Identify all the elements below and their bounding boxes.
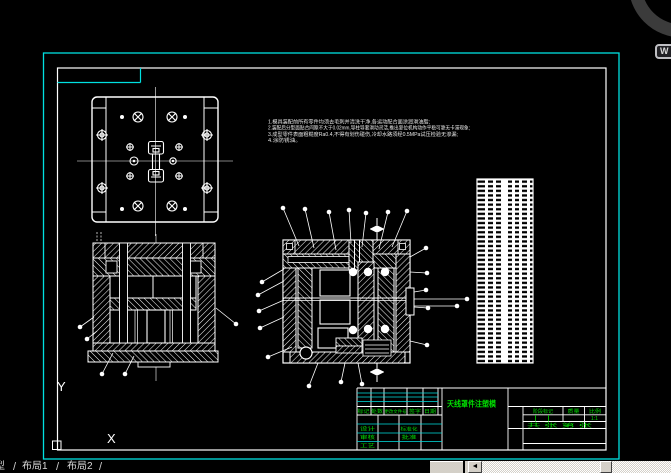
- stage-mark-dividers: [536, 415, 549, 422]
- rev-count-label: 处数: [371, 408, 383, 415]
- top-plan-view: [77, 87, 233, 236]
- navigation-wheel-arc: [635, 0, 671, 31]
- title-block: 天线罩件注塑模 标记 处数 更改文件号 签字 日期 设计 标准化 审核 批准 工…: [357, 388, 606, 450]
- title-block-title: 天线罩件注塑模: [447, 399, 497, 409]
- role-check-label: 审核: [360, 434, 375, 441]
- rev-mark-label: 标记: [358, 408, 370, 415]
- tab-separator: /: [99, 461, 102, 473]
- note-line-2: 2.装配后分型面贴合间隙不大于0.02mm,导柱导套滑动灵活,推出复位机构动作平…: [268, 125, 470, 132]
- rev-file-label: 更改文件号: [385, 408, 407, 415]
- key-hint-badge: W: [655, 44, 671, 59]
- sheet-info: 共 张 第 张: [527, 422, 592, 429]
- horizontal-scrollbar-track[interactable]: [482, 461, 671, 473]
- rev-sign-label: 签字: [409, 408, 421, 415]
- tab-separator: /: [13, 461, 16, 473]
- side-section-view: [477, 179, 533, 363]
- role-design-label: 设计: [360, 426, 375, 433]
- scale-label: 比例: [589, 408, 601, 415]
- horizontal-scrollbar-thumb[interactable]: [600, 461, 612, 473]
- cad-application-window: 1.模具装配前所有零件均须去毛刺并清洗干净,各运动配合面涂润滑油脂; 2.装配后…: [0, 0, 671, 473]
- weight-label: 质量: [568, 408, 580, 415]
- key-hint-label: W: [660, 46, 669, 56]
- sheet-corner-box: [58, 68, 141, 83]
- role-standard-label: 标准化: [401, 426, 419, 433]
- stage-mark-label: 阶段标记: [533, 408, 553, 415]
- scale-value: 1:1: [591, 416, 598, 422]
- front-section-view: [88, 232, 218, 381]
- role-approve-label: 批准: [402, 434, 417, 441]
- role-process-label: 工艺: [360, 444, 375, 450]
- note-line-4: 4.涂防锈油。: [268, 137, 301, 144]
- ucs-y-label: Y: [57, 379, 66, 394]
- tab-model-partial[interactable]: 型: [0, 461, 5, 473]
- technical-notes: 1.模具装配前所有零件均须去毛刺并清洗干净,各运动配合面涂润滑油脂; 2.装配后…: [268, 119, 470, 145]
- tabbar-end-cap: [430, 461, 463, 473]
- tab-separator: /: [56, 461, 59, 473]
- drawing-canvas[interactable]: 1.模具装配前所有零件均须去毛刺并清洗干净,各运动配合面涂润滑油脂; 2.装配后…: [0, 0, 671, 473]
- tab-layout1[interactable]: 布局1: [22, 461, 48, 473]
- ucs-icon: Y X: [53, 379, 117, 450]
- main-section-view: [283, 218, 414, 382]
- left-arrow-icon: ◄: [472, 463, 479, 470]
- note-line-1: 1.模具装配前所有零件均须去毛刺并清洗干净,各运动配合面涂润滑油脂;: [268, 119, 430, 126]
- tab-layout2[interactable]: 布局2: [67, 461, 93, 473]
- scroll-left-button[interactable]: ◄: [468, 461, 482, 473]
- ucs-x-label: X: [107, 431, 116, 446]
- note-line-3: 3.成型零件表面粗糙度Ra0.4,不得有划伤碰伤,冷却水路须经0.5MPa试压检…: [268, 131, 458, 138]
- rev-date-label: 日期: [424, 409, 436, 415]
